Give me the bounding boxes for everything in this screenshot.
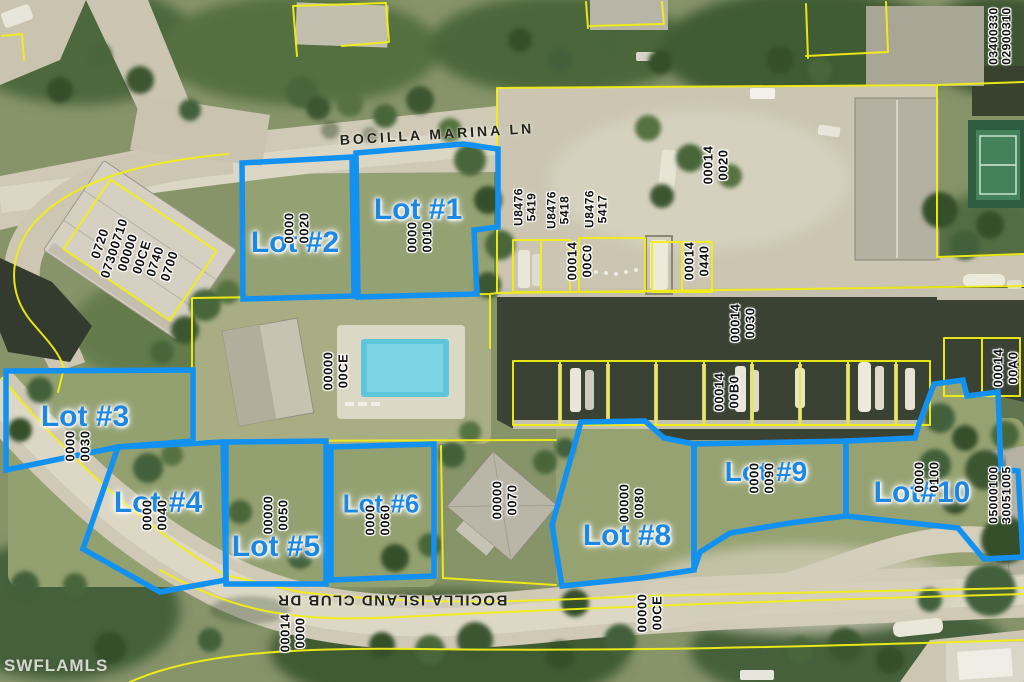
dock-parcel-5418: U84765418 <box>546 191 573 229</box>
lot4-parcel-number: 00000040 <box>140 500 169 531</box>
pool-common-parcel: 0000000CE <box>321 352 350 391</box>
road-parcel-number: 000140000 <box>278 614 307 653</box>
marina-upland-parcel: 000140020 <box>701 146 730 185</box>
street-bocilla-island-club-dr: BOCILLA ISLAND CLUB DR <box>277 592 508 609</box>
slip-parcel-00b0: 0001400B0 <box>712 373 741 412</box>
ne-parcel-numbers: 0340033002900310 <box>988 7 1015 64</box>
lot-label-3[interactable]: Lot #3 <box>41 400 129 434</box>
lot1-parcel-number: 00000010 <box>405 222 434 253</box>
aerial-plat-map: BOCILLA MARINA LN BOCILLA ISLAND CLUB DR… <box>0 0 1024 682</box>
lot-label-5[interactable]: Lot #5 <box>232 530 320 564</box>
lot3-parcel-number: 00000030 <box>63 431 92 462</box>
slip-parcel-0440: 000140440 <box>682 242 711 281</box>
lot9-parcel-number: 00000090 <box>747 463 776 494</box>
lot-label-8[interactable]: Lot #8 <box>583 519 671 553</box>
lot2-parcel-number: 00000020 <box>282 213 311 244</box>
lot10-parcel-number: 00000100 <box>912 462 941 493</box>
se-parcel-numbers: 0500010030051005 <box>988 466 1015 523</box>
lot7-house-parcel: 000000070 <box>490 481 519 520</box>
lot8-parcel-number: 000000080 <box>617 484 646 523</box>
lot5-parcel-number: 000000050 <box>261 496 290 535</box>
slip-parcel-00c0: 0001400C0 <box>565 242 594 281</box>
dock-parcel-5419: U84765419 <box>513 188 540 226</box>
dock-parcel-5417: U84765417 <box>584 190 611 228</box>
label-overlay: BOCILLA MARINA LN BOCILLA ISLAND CLUB DR… <box>0 0 1024 682</box>
common-area-parcel: 0000000CE <box>635 594 664 633</box>
slip-parcel-00a0: 0001400A0 <box>991 349 1020 388</box>
street-bocilla-marina-ln: BOCILLA MARINA LN <box>339 120 534 148</box>
mls-watermark: SWFLAMLS <box>4 656 108 676</box>
lot6-parcel-number: 00000060 <box>363 505 392 536</box>
condo-parcel-numbers: 0720073007100000000CE07400700 <box>84 212 186 298</box>
canal-parcel-number: 000140030 <box>728 304 757 343</box>
